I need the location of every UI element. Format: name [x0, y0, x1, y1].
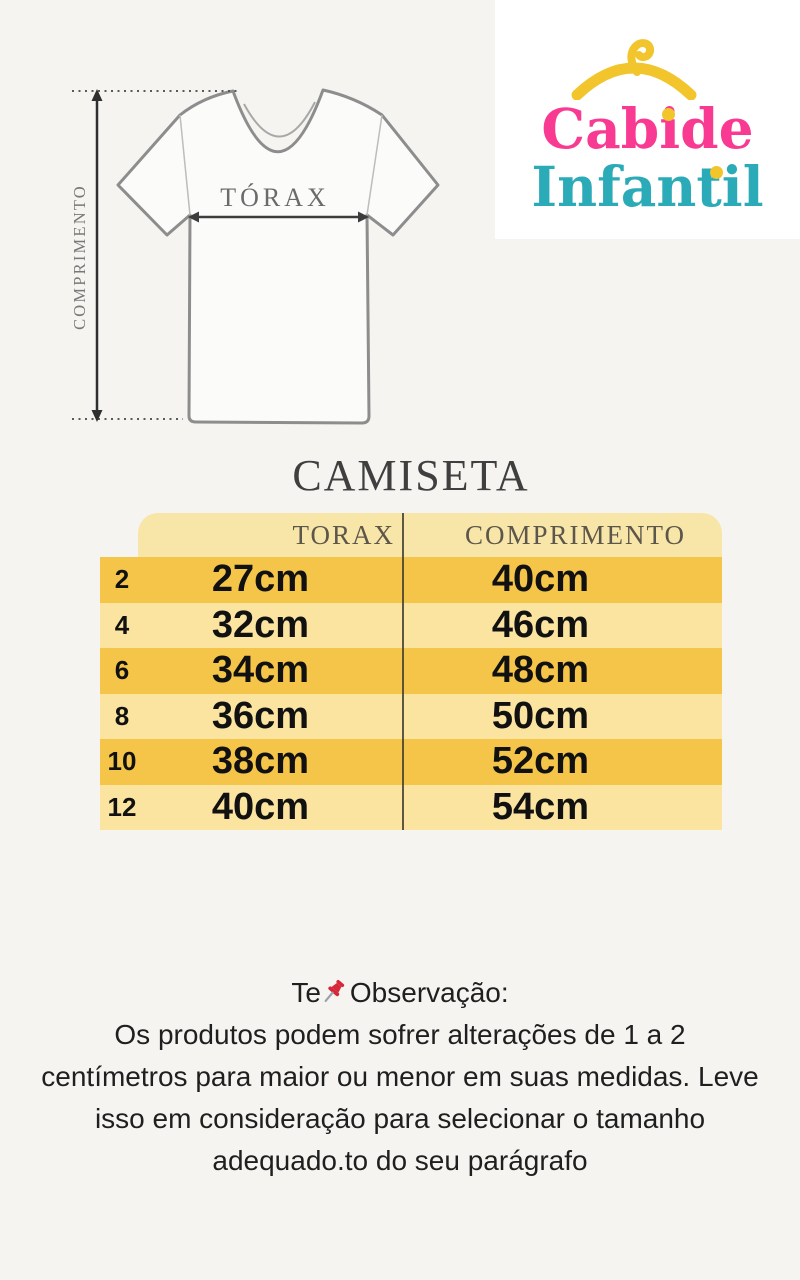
- note-line: centímetros para maior ou menor em suas …: [10, 1056, 790, 1098]
- comprimento-cell: 50cm: [403, 695, 722, 738]
- brand-name-line1: Cabide: [495, 100, 800, 158]
- table-row: 4 32cm 46cm: [100, 603, 722, 649]
- length-label: COMPRIMENTO: [70, 184, 89, 330]
- note-line: adequado.to do seu parágrafo: [10, 1140, 790, 1182]
- note-title: Observação:: [350, 977, 509, 1008]
- torax-cell: 27cm: [152, 558, 403, 601]
- table-row: 6 34cm 48cm: [100, 648, 722, 694]
- size-cell: 2: [100, 564, 152, 595]
- torax-cell: 36cm: [152, 695, 403, 738]
- i-dot-decoration: [710, 166, 723, 179]
- i-dot-decoration: [662, 108, 675, 121]
- brand-logo: Cabide Infantil: [495, 0, 800, 239]
- size-cell: 12: [100, 792, 152, 823]
- note-heading: Te Observação:: [10, 972, 790, 1014]
- torax-cell: 38cm: [152, 740, 403, 783]
- product-title: CAMISETA: [100, 450, 722, 501]
- comprimento-cell: 48cm: [403, 649, 722, 692]
- column-header-comprimento: COMPRIMENTO: [403, 520, 722, 551]
- torax-cell: 40cm: [152, 786, 403, 829]
- torax-cell: 32cm: [152, 604, 403, 647]
- column-divider: [402, 513, 404, 830]
- comprimento-cell: 40cm: [403, 558, 722, 601]
- column-header-torax: TORAX: [138, 520, 403, 551]
- brand-name-line2: Infantil: [495, 158, 800, 216]
- size-cell: 6: [100, 655, 152, 686]
- hanger-icon: [571, 28, 697, 100]
- table-row: 8 36cm 50cm: [100, 694, 722, 740]
- table-row: 2 27cm 40cm: [100, 557, 722, 603]
- size-table: TORAX COMPRIMENTO 2 27cm 40cm 4 32cm 46c…: [100, 513, 722, 830]
- size-cell: 8: [100, 701, 152, 732]
- torax-cell: 34cm: [152, 649, 403, 692]
- size-table-header: TORAX COMPRIMENTO: [138, 513, 722, 557]
- tshirt-measurement-diagram: TÓRAX COMPRIMENTO: [55, 70, 475, 440]
- length-arrow-head-bottom: [92, 410, 103, 422]
- comprimento-cell: 54cm: [403, 786, 722, 829]
- pushpin-icon: [321, 977, 347, 1007]
- table-row: 10 38cm 52cm: [100, 739, 722, 785]
- size-cell: 4: [100, 610, 152, 641]
- table-row: 12 40cm 54cm: [100, 785, 722, 831]
- note-prefix: Te: [291, 977, 321, 1008]
- size-cell: 10: [100, 746, 152, 777]
- size-table-body: 2 27cm 40cm 4 32cm 46cm 6 34cm 48cm 8 36…: [100, 557, 722, 830]
- observation-note: Te Observação: Os produtos podem sofrer …: [10, 972, 790, 1182]
- tshirt-outline: [118, 90, 438, 423]
- note-line: Os produtos podem sofrer alterações de 1…: [10, 1014, 790, 1056]
- note-line: isso em consideração para selecionar o t…: [10, 1098, 790, 1140]
- comprimento-cell: 52cm: [403, 740, 722, 783]
- size-chart-page: TÓRAX COMPRIMENTO Cabide Infantil CAMISE…: [0, 0, 800, 1280]
- comprimento-cell: 46cm: [403, 604, 722, 647]
- chest-label: TÓRAX: [220, 183, 330, 212]
